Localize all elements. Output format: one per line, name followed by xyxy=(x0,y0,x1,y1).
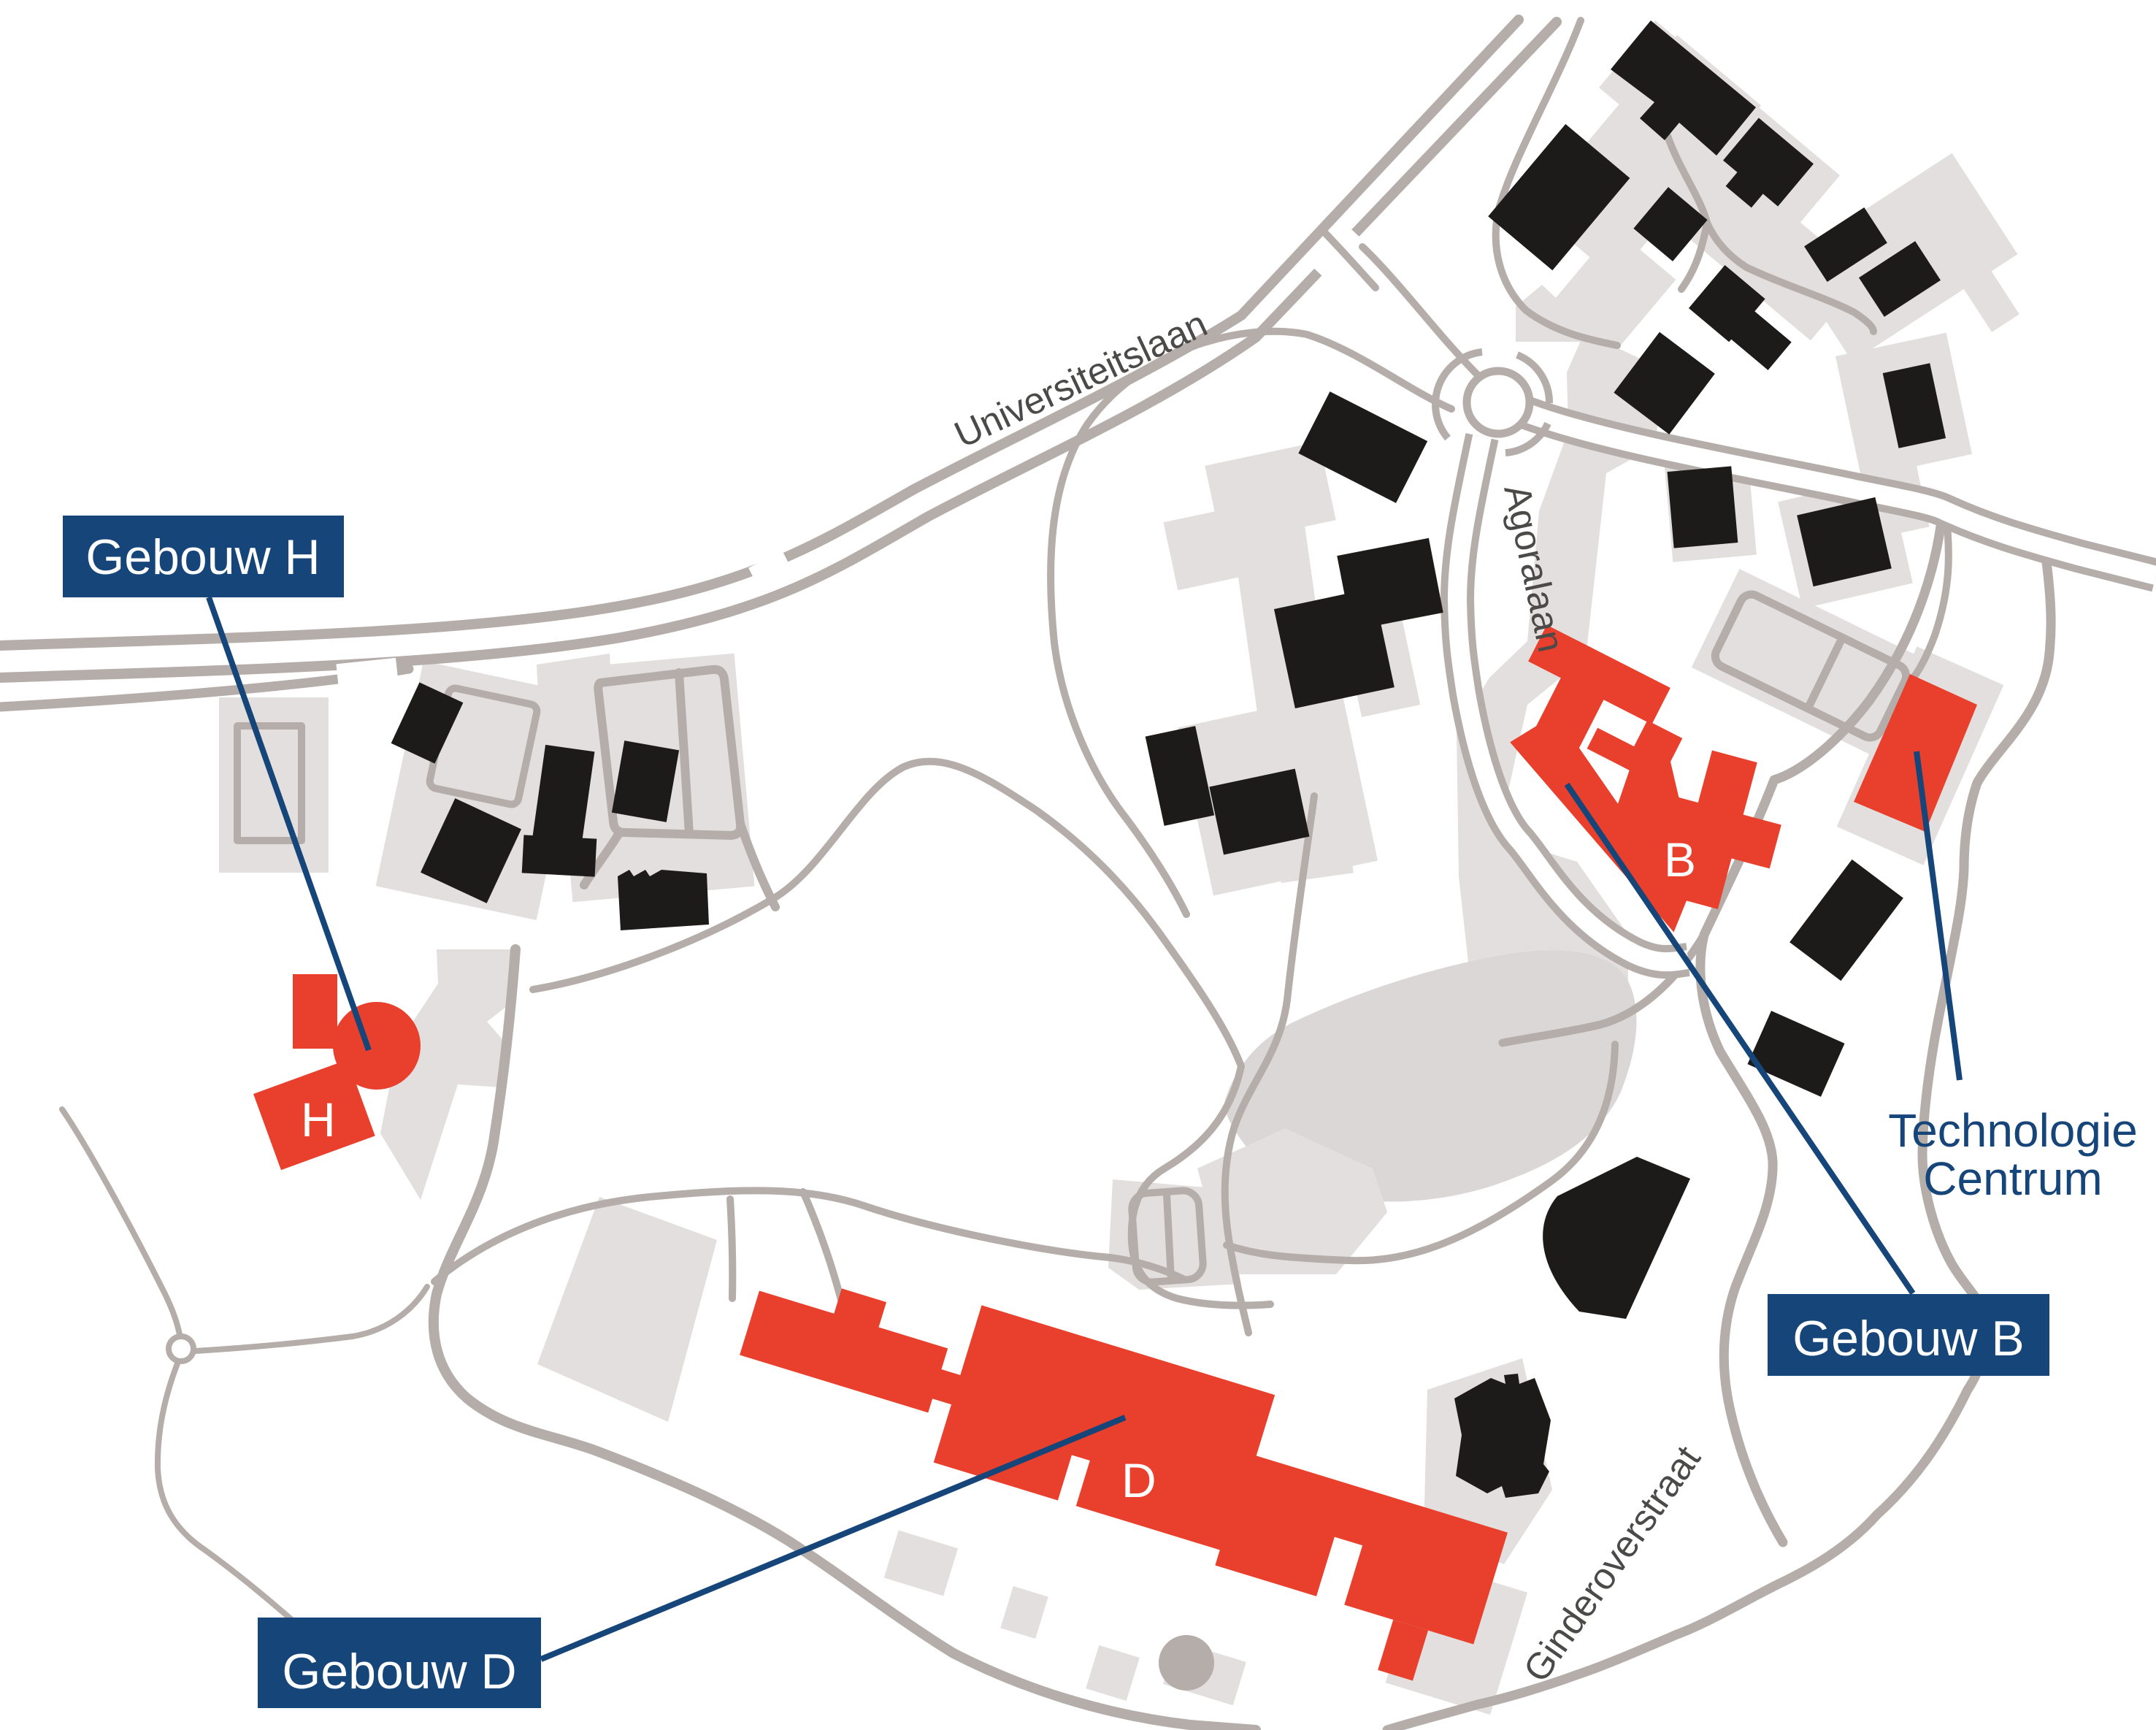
svg-text:Centrum: Centrum xyxy=(1923,1152,2102,1205)
svg-text:Gebouw B: Gebouw B xyxy=(1792,1311,2025,1366)
svg-text:Gebouw H: Gebouw H xyxy=(85,529,320,585)
svg-text:B: B xyxy=(1664,833,1696,887)
svg-text:Technologie: Technologie xyxy=(1888,1104,2138,1157)
svg-text:H: H xyxy=(301,1092,336,1147)
svg-text:D: D xyxy=(1121,1453,1156,1507)
svg-text:Gebouw D: Gebouw D xyxy=(282,1644,516,1699)
